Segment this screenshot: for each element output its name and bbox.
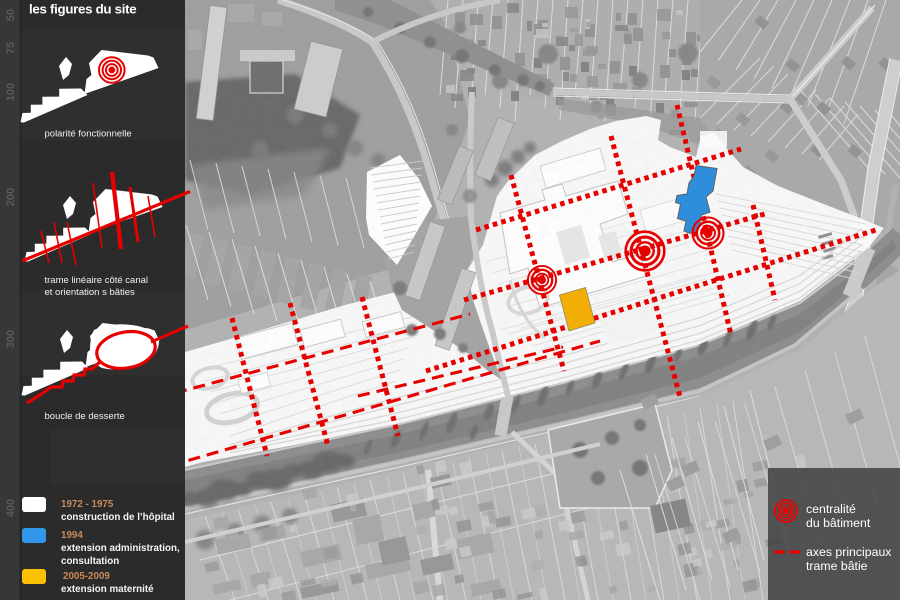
- svg-text:100: 100: [5, 83, 17, 101]
- svg-text:axes principaux: axes principaux: [806, 545, 892, 559]
- svg-text:400: 400: [5, 499, 17, 517]
- svg-text:centralité: centralité: [806, 502, 856, 516]
- svg-text:50: 50: [5, 9, 17, 21]
- svg-text:trame bâtie: trame bâtie: [806, 559, 868, 573]
- svg-text:extension administration,: extension administration,: [61, 543, 180, 554]
- svg-text:boucle de desserte: boucle de desserte: [45, 411, 125, 422]
- svg-text:et orientation s bâties: et orientation s bâties: [45, 287, 136, 298]
- svg-text:les figures du site: les figures du site: [29, 2, 136, 17]
- svg-text:trame linéaire côté canal: trame linéaire côté canal: [45, 275, 149, 286]
- svg-text:300: 300: [5, 330, 17, 348]
- svg-text:consultation: consultation: [61, 556, 119, 567]
- svg-text:polarité fonctionnelle: polarité fonctionnelle: [45, 129, 132, 140]
- svg-text:extension maternité: extension maternité: [61, 584, 154, 595]
- svg-text:1972 - 1975: 1972 - 1975: [61, 499, 114, 510]
- svg-text:du bâtiment: du bâtiment: [806, 516, 871, 530]
- svg-text:200: 200: [5, 188, 17, 206]
- svg-text:construction de l’hôpital: construction de l’hôpital: [61, 512, 175, 523]
- svg-text:1994: 1994: [61, 530, 83, 541]
- svg-text:2005-2009: 2005-2009: [63, 571, 110, 582]
- svg-text:75: 75: [5, 42, 17, 54]
